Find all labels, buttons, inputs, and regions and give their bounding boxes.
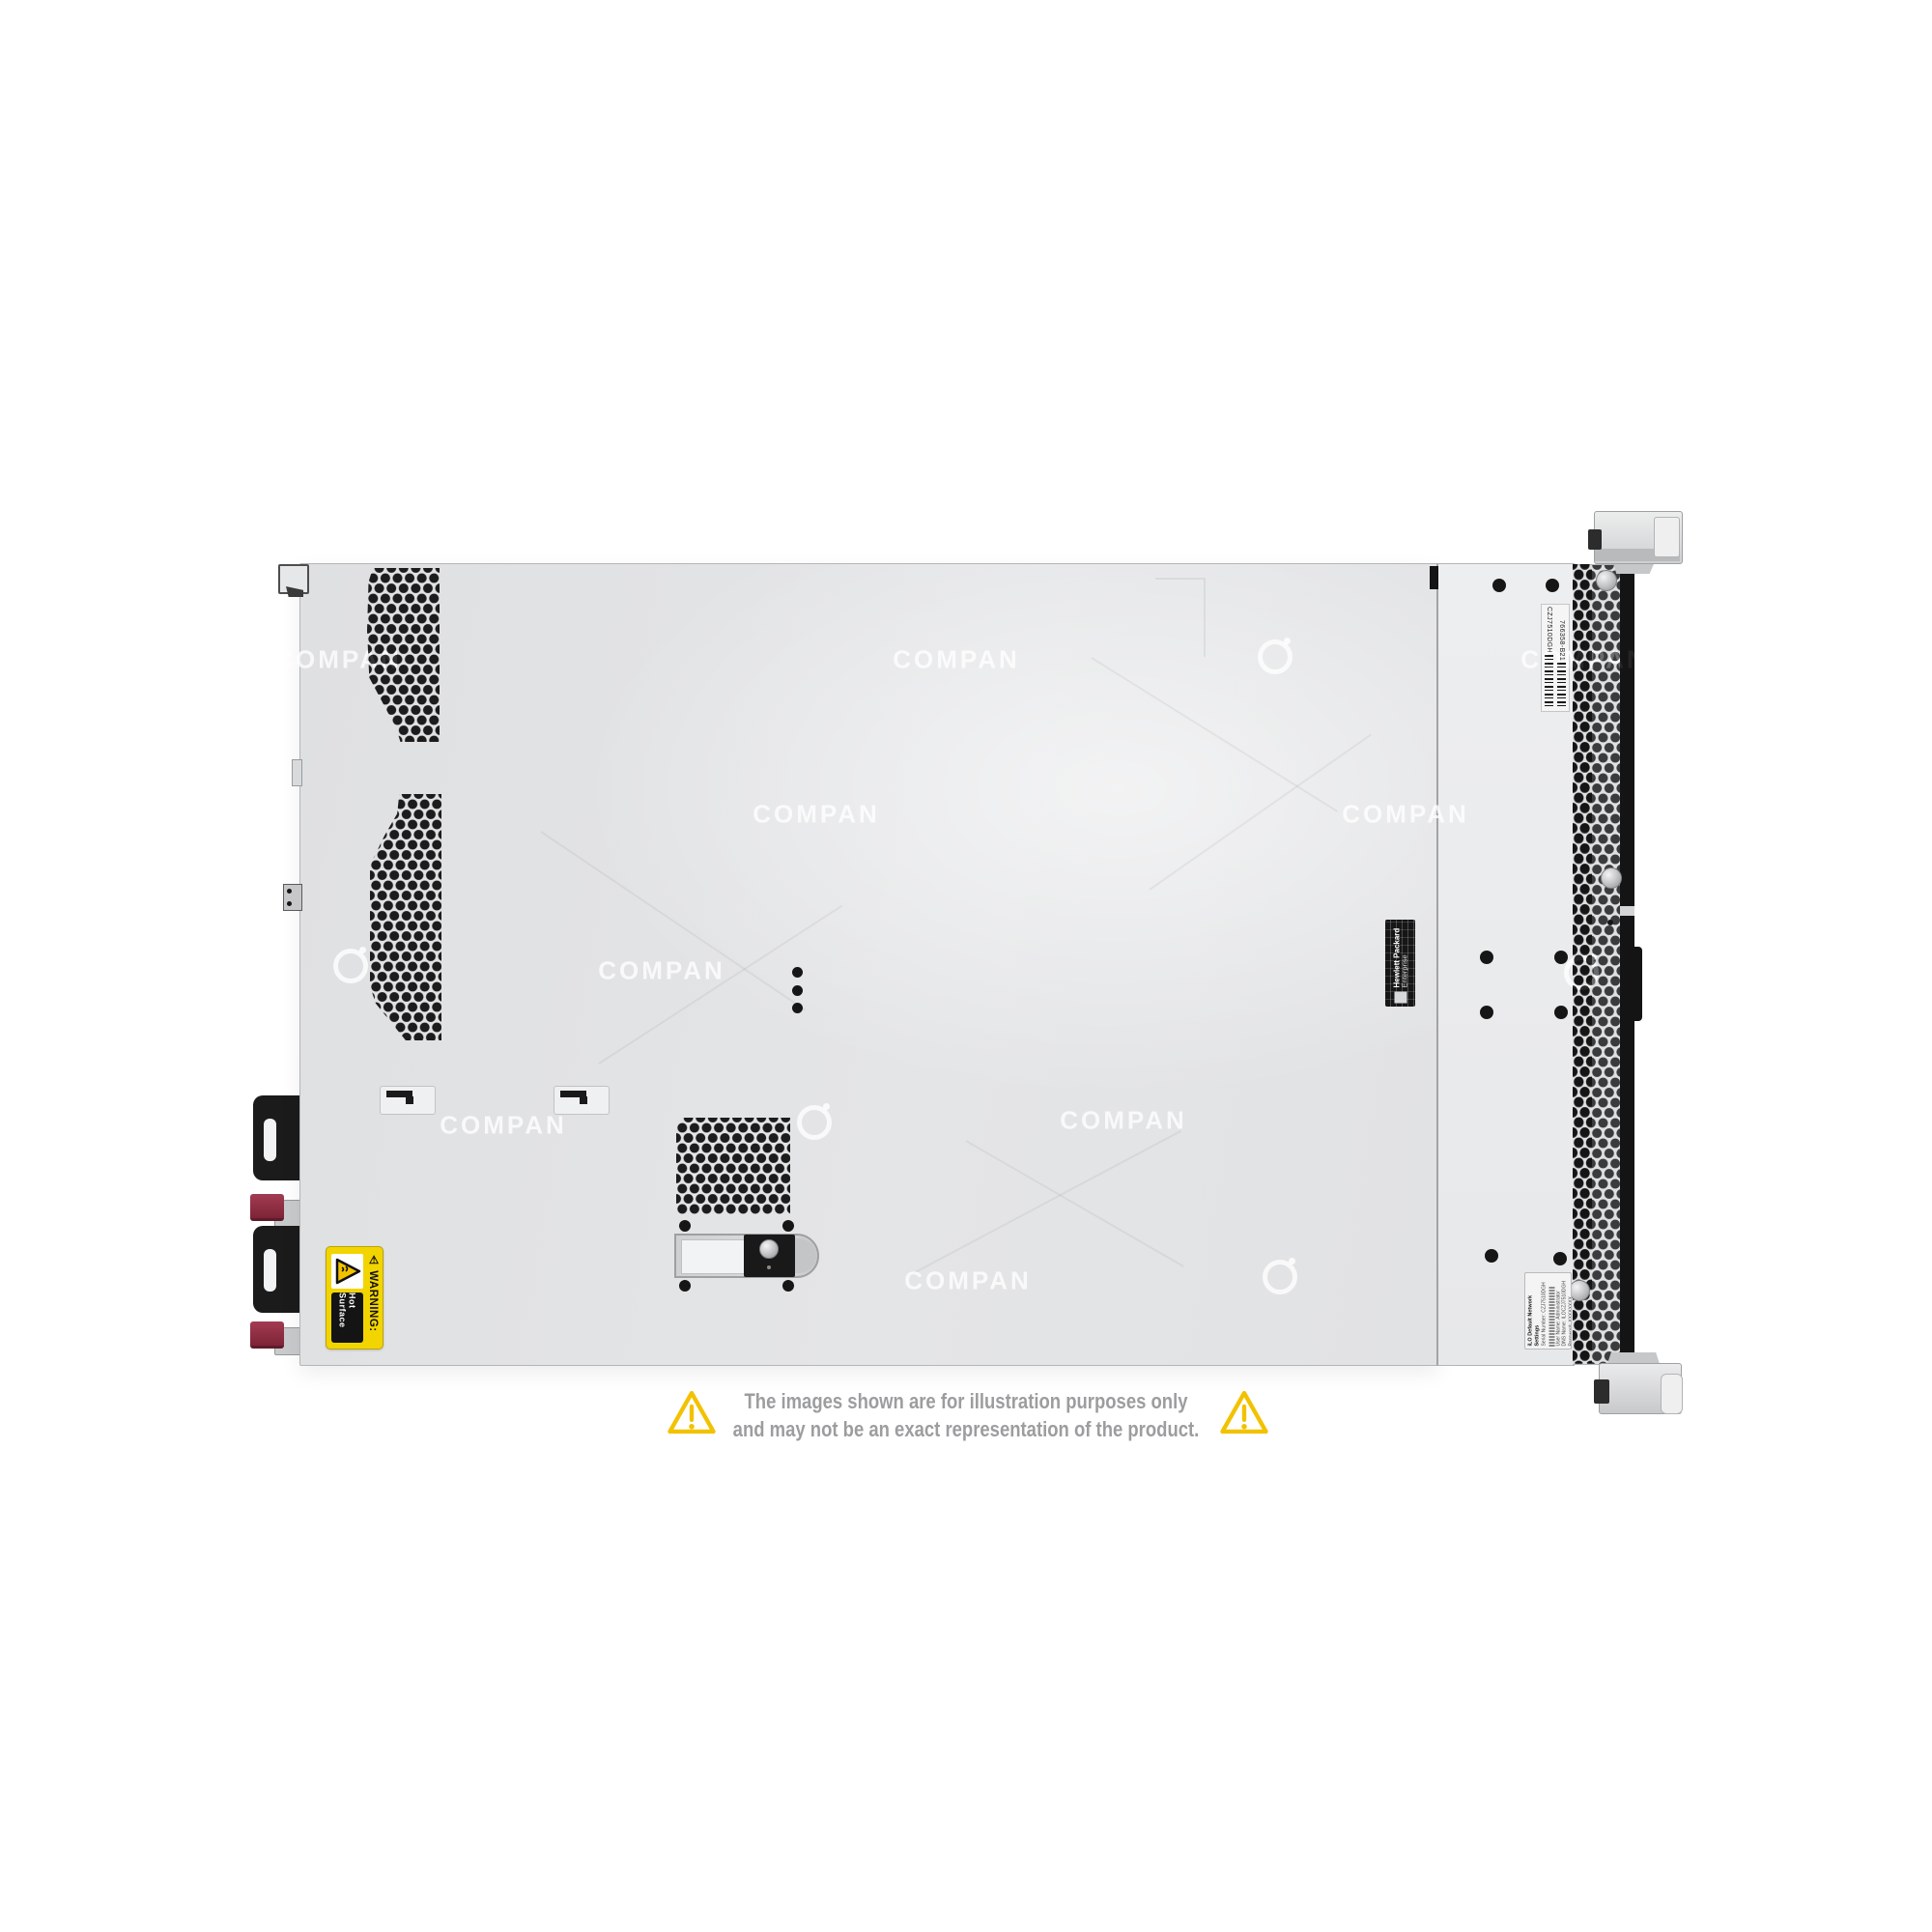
- panel-hole: [1480, 951, 1493, 964]
- cover-seam-clip: [1430, 566, 1438, 589]
- bezel-screw: [1569, 1280, 1590, 1301]
- bezel-latch-tab: [1634, 947, 1642, 1021]
- latch-corner-hole: [782, 1220, 794, 1232]
- psu-handle-slot: [264, 1119, 276, 1161]
- bezel-screw: [1601, 867, 1622, 889]
- serial-barcode-label: CZJ7510DGH 766358-B21: [1541, 604, 1570, 712]
- latch-corner-hole: [782, 1280, 794, 1292]
- rack-ear-thumbscrew-bottom: [1661, 1374, 1683, 1414]
- bezel-screw: [1596, 570, 1617, 591]
- ilo-settings-label: iLO Default Network Settings Serial Numb…: [1524, 1272, 1572, 1350]
- bezel-black-strip-top: [1620, 563, 1634, 906]
- latch-end-cap: [792, 1238, 816, 1273]
- ilo-label-dns: DNS Name: ILOCZJ7510DGH: [1561, 1276, 1568, 1346]
- ilo-label-user: User Name: Administrator: [1555, 1276, 1562, 1346]
- latch-corner-hole: [679, 1280, 691, 1292]
- side-clip: [283, 884, 302, 911]
- psu-handle-slot: [264, 1249, 276, 1292]
- panel-hole: [1492, 579, 1506, 592]
- rack-ear-thumbscrew-top: [1654, 517, 1680, 557]
- latch-corner-hole: [679, 1220, 691, 1232]
- hpe-label-line1: Hewlett Packard: [1392, 927, 1401, 987]
- side-clip-rivet: [287, 889, 292, 894]
- part-number-text: 766358-B21: [1558, 620, 1565, 661]
- psu-release-tab-top: [250, 1194, 284, 1221]
- hot-surface-triangle-icon: [334, 1257, 361, 1286]
- ilo-label-barcode: [1548, 1286, 1554, 1346]
- cover-panel-line: [1204, 578, 1206, 657]
- front-bezel-vent-dark-column: [1573, 564, 1592, 1363]
- panel-hole: [1554, 951, 1568, 964]
- panel-pinhole: [1607, 920, 1613, 925]
- ilo-label-password: Password: XXXXXXXX: [1568, 1276, 1572, 1346]
- bezel-strip-gap: [1620, 906, 1634, 916]
- ilo-label-title: iLO Default Network Settings: [1527, 1276, 1541, 1346]
- disclaimer-line2: and may not be an exact representation o…: [641, 1415, 1291, 1443]
- latch-plate: [681, 1239, 745, 1274]
- cover-latch-recess: [674, 1234, 819, 1278]
- cover-pull-tab-left: [380, 1086, 436, 1115]
- side-clip-rivet: [287, 901, 292, 906]
- cover-pull-tab-right: [554, 1086, 610, 1115]
- rack-ear-latch-top: [1588, 529, 1602, 550]
- panel-hole: [1480, 1006, 1493, 1019]
- pull-tab-nub: [406, 1096, 413, 1104]
- serial-barcode: [1545, 655, 1553, 709]
- ilo-label-serial: Serial Number: CZJ7510DGH: [1541, 1276, 1548, 1346]
- panel-hole: [1553, 1252, 1567, 1265]
- serial-number-text: CZJ7510DGH: [1546, 607, 1552, 653]
- hpe-brand-label: Hewlett Packard Enterprise: [1385, 920, 1415, 1007]
- hpe-label-content: Hewlett Packard Enterprise: [1385, 920, 1415, 1007]
- cover-hole: [792, 985, 803, 996]
- latch-screw: [759, 1239, 779, 1259]
- psu-release-tab-bottom: [250, 1321, 284, 1349]
- hpe-logo-mark: [1394, 991, 1406, 1003]
- disclaimer-line1: The images shown are for illustration pu…: [641, 1387, 1291, 1415]
- bezel-black-strip-bottom: [1620, 916, 1634, 1362]
- ilo-label-content: iLO Default Network Settings Serial Numb…: [1525, 1273, 1571, 1349]
- warning-triangle-icon-right: [1219, 1388, 1269, 1436]
- cover-vent-center: [676, 1118, 790, 1214]
- hot-surface-warning-label: ⚠ WARNING: Hot Surface: [326, 1246, 384, 1350]
- server-top-cover: [299, 563, 1438, 1366]
- side-tab: [292, 759, 302, 786]
- panel-hole: [1554, 1006, 1568, 1019]
- pull-tab-nub: [580, 1096, 587, 1104]
- cover-hole: [792, 967, 803, 978]
- hot-surface-box: Hot Surface: [331, 1293, 363, 1343]
- hpe-label-line2: Enterprise: [1401, 927, 1409, 987]
- warning-triangle-box: [331, 1254, 363, 1289]
- cover-panel-line: [1155, 578, 1204, 580]
- hot-surface-text: Hot Surface: [338, 1293, 357, 1343]
- latch-pin: [767, 1265, 771, 1269]
- panel-hole: [1485, 1249, 1498, 1263]
- panel-hole: [1546, 579, 1559, 592]
- part-number-barcode: [1557, 663, 1566, 709]
- rack-ear-latch-bottom: [1594, 1379, 1609, 1404]
- warning-heading: ⚠ WARNING:: [366, 1253, 380, 1345]
